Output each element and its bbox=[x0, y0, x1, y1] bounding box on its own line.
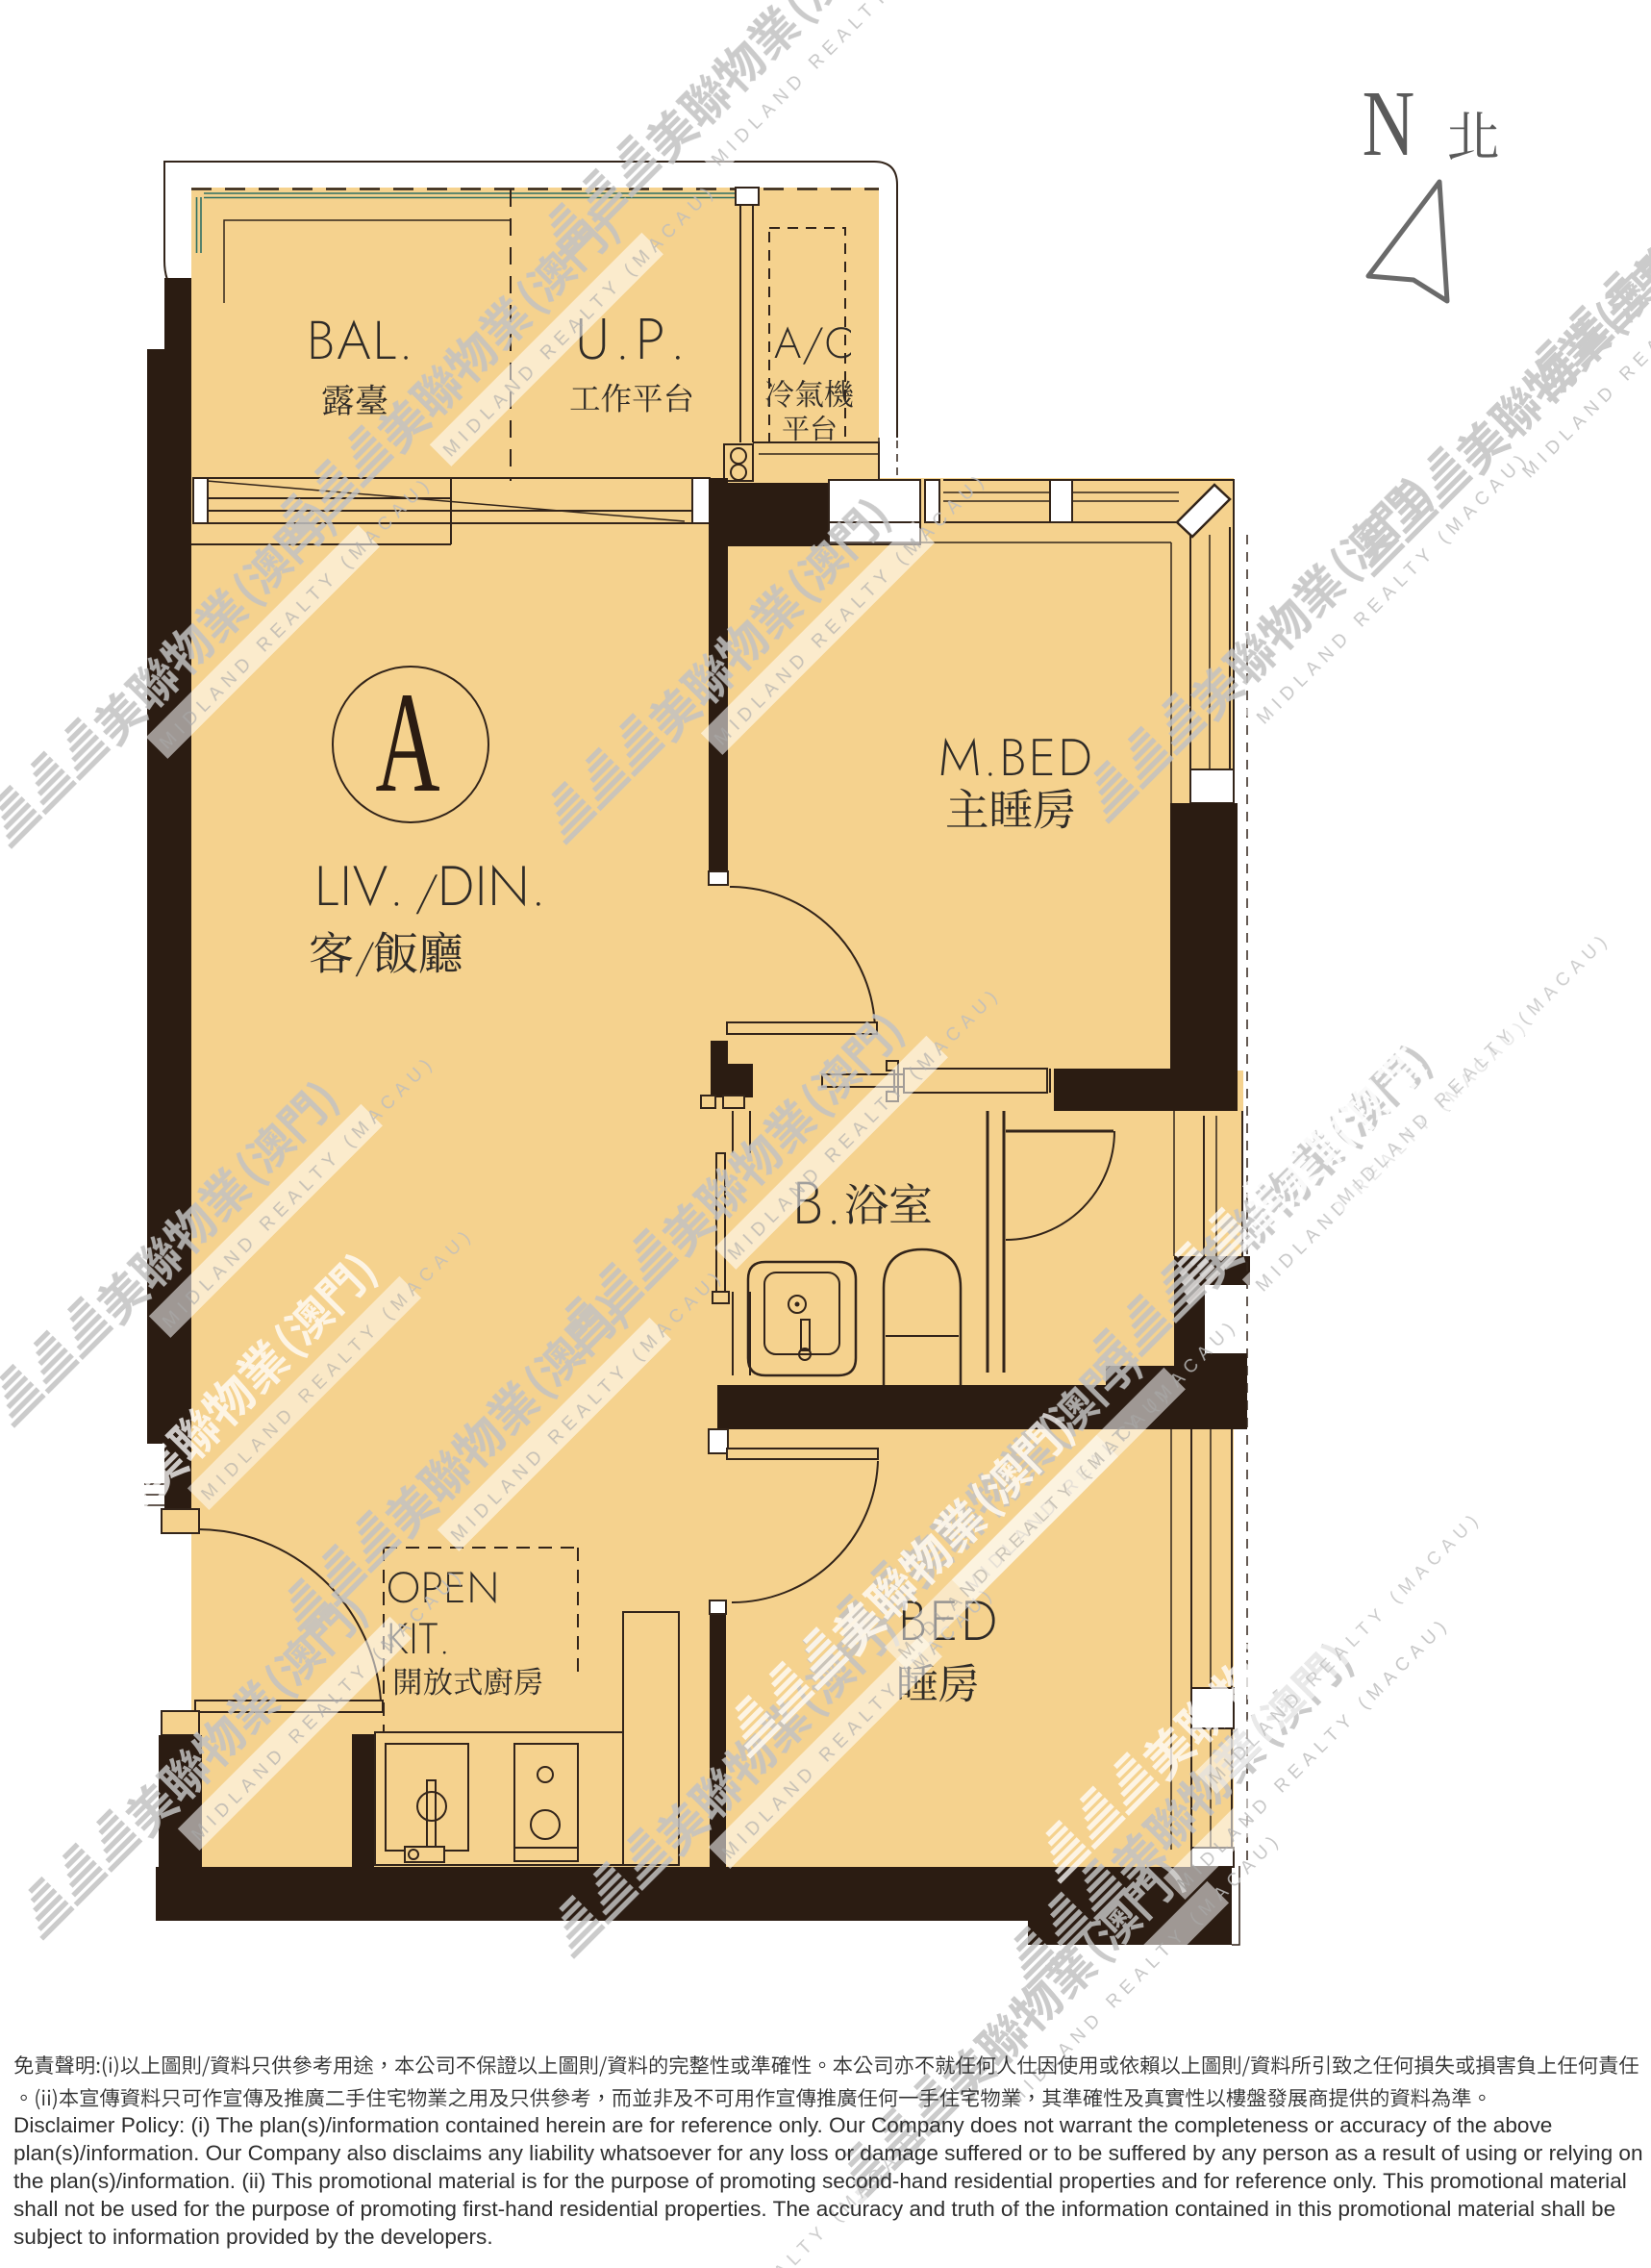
svg-text:shall not be used for the purp: shall not be used for the purpose of pro… bbox=[13, 2197, 1615, 2221]
svg-text:plan(s)/information. Our Compa: plan(s)/information. Our Company also di… bbox=[13, 2141, 1643, 2165]
svg-text:subject to information provide: subject to information provided by the d… bbox=[13, 2225, 493, 2249]
svg-text:A: A bbox=[375, 663, 439, 822]
svg-text:the plan(s)/information. (ii): the plan(s)/information. (ii) This promo… bbox=[13, 2169, 1627, 2193]
svg-text:Disclaimer Policy: (i) The pla: Disclaimer Policy: (i) The plan(s)/infor… bbox=[13, 2113, 1552, 2137]
svg-text:N: N bbox=[1363, 71, 1415, 175]
